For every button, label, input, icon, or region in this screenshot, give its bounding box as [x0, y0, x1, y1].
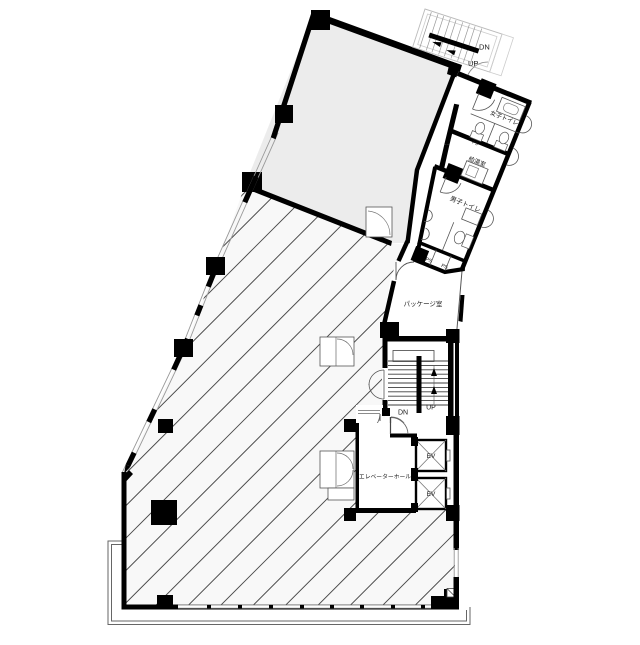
svg-text:UP: UP [426, 405, 436, 412]
svg-text:DN: DN [479, 43, 490, 52]
svg-text:EV: EV [427, 491, 436, 498]
svg-text:UP: UP [468, 59, 478, 68]
svg-text:パッケージ室: パッケージ室 [404, 299, 443, 308]
svg-text:エレベーターホール: エレベーターホール [359, 473, 411, 481]
svg-text:DN: DN [398, 410, 408, 417]
svg-text:EV: EV [427, 453, 436, 460]
